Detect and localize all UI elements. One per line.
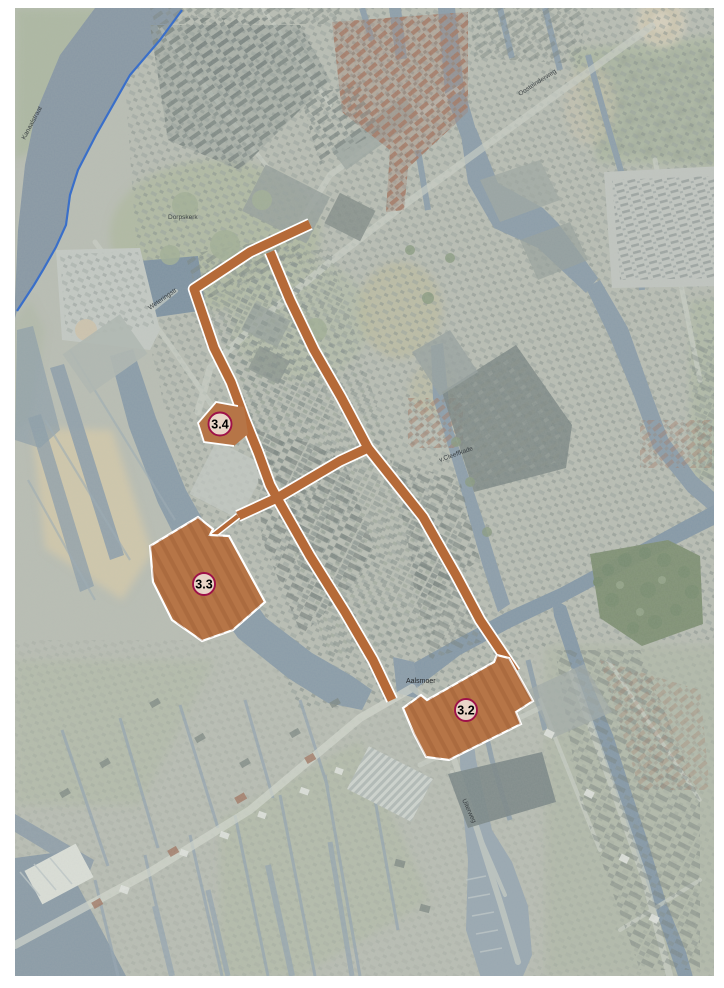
svg-text:Aalsmoer: Aalsmoer bbox=[406, 678, 436, 685]
svg-text:Dorpskerk: Dorpskerk bbox=[168, 214, 198, 221]
svg-text:3.2: 3.2 bbox=[457, 704, 474, 718]
svg-text:3.3: 3.3 bbox=[195, 578, 212, 592]
svg-text:3.4: 3.4 bbox=[211, 418, 228, 432]
